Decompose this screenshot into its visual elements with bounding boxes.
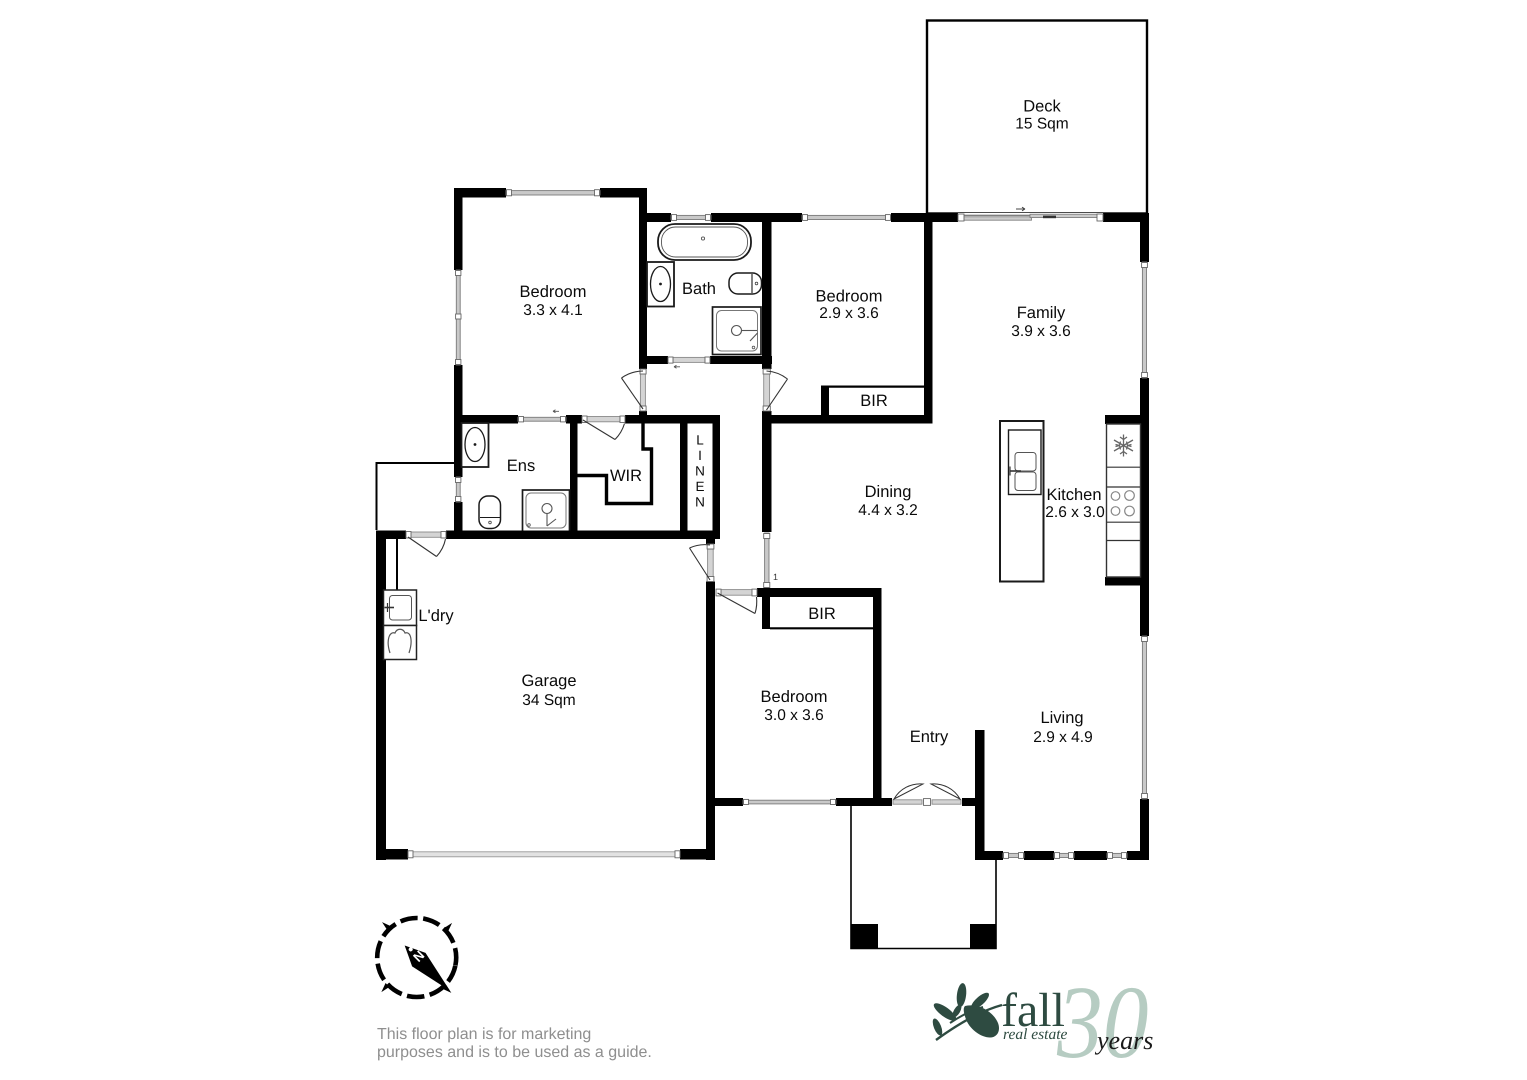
svg-text:N: N	[695, 464, 705, 479]
svg-text:Dining: Dining	[865, 483, 912, 501]
svg-text:E: E	[695, 479, 704, 494]
svg-text:Kitchen: Kitchen	[1046, 486, 1101, 504]
svg-text:4.4 x 3.2: 4.4 x 3.2	[858, 502, 917, 519]
svg-text:2.9 x 3.6: 2.9 x 3.6	[819, 305, 878, 322]
svg-text:This floor plan is for marketi: This floor plan is for marketing	[377, 1026, 591, 1043]
svg-text:years: years	[1094, 1026, 1153, 1055]
svg-text:30: 30	[1056, 965, 1148, 1080]
svg-text:Ens: Ens	[507, 457, 535, 475]
svg-text:BIR: BIR	[860, 392, 888, 410]
svg-text:3.9 x 3.6: 3.9 x 3.6	[1011, 323, 1070, 340]
svg-text:L'dry: L'dry	[418, 607, 454, 625]
svg-text:Bedroom: Bedroom	[520, 283, 587, 301]
svg-text:BIR: BIR	[808, 605, 836, 623]
svg-text:2.6 x 3.0: 2.6 x 3.0	[1045, 504, 1105, 521]
svg-text:Bedroom: Bedroom	[761, 688, 828, 706]
svg-text:15 Sqm: 15 Sqm	[1015, 116, 1068, 133]
svg-text:Family: Family	[1017, 304, 1066, 322]
svg-text:Entry: Entry	[910, 728, 949, 746]
svg-text:3.0 x 3.6: 3.0 x 3.6	[764, 707, 823, 724]
svg-text:Garage: Garage	[521, 672, 576, 690]
svg-text:I: I	[698, 448, 702, 463]
svg-text:Living: Living	[1040, 709, 1083, 727]
svg-text:34 Sqm: 34 Sqm	[522, 692, 575, 709]
svg-text:WIR: WIR	[610, 467, 642, 485]
svg-text:1: 1	[773, 572, 778, 582]
svg-text:L: L	[696, 433, 704, 448]
svg-text:Deck: Deck	[1023, 98, 1061, 116]
svg-text:Bedroom: Bedroom	[816, 288, 883, 306]
svg-text:2.9 x 4.9: 2.9 x 4.9	[1033, 729, 1092, 746]
svg-text:3.3 x 4.1: 3.3 x 4.1	[523, 302, 582, 319]
svg-text:Bath: Bath	[682, 280, 716, 298]
svg-text:purposes and is to be used as: purposes and is to be used as a guide.	[377, 1044, 652, 1061]
svg-text:N: N	[695, 495, 705, 510]
